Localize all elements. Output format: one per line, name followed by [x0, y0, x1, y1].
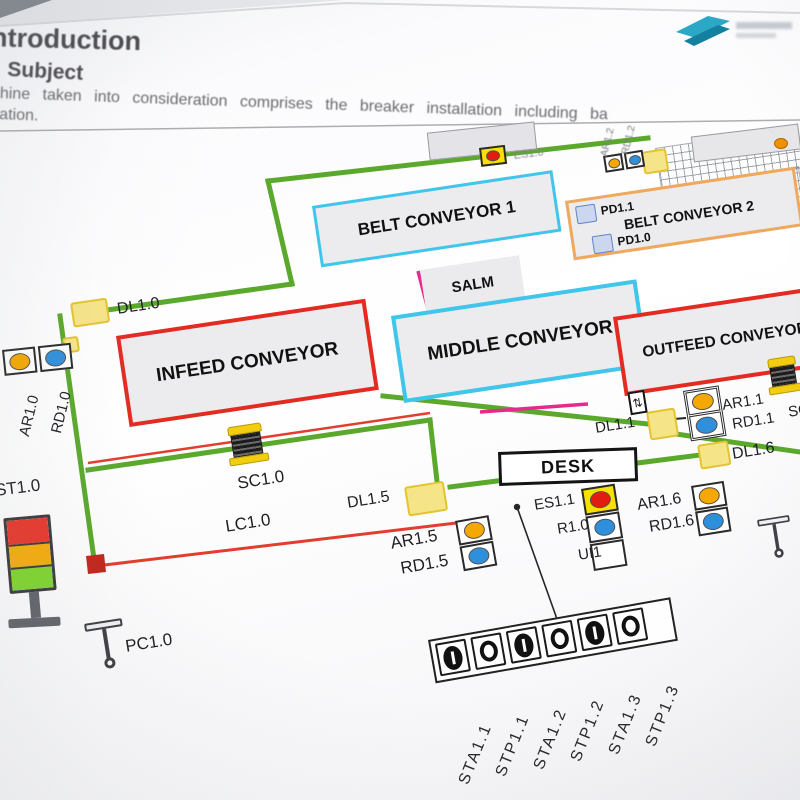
- safety-camera-sc11-icon: [764, 355, 800, 396]
- stop-button-stp12: [541, 620, 577, 658]
- estop-red-button: [588, 490, 611, 510]
- door-pad-dl15: [404, 481, 448, 517]
- start-button-sta13: [577, 613, 613, 651]
- estop-red-button: [485, 150, 500, 163]
- stop-glyph: [478, 639, 499, 663]
- body-text-line2: lation.: [0, 106, 39, 125]
- amber-lamp: [607, 157, 620, 169]
- orange-indicator-dot: [774, 138, 788, 149]
- door-pad-dl11: [646, 407, 679, 440]
- amber-lamp-icon: [691, 481, 728, 511]
- blue-lamp: [467, 546, 491, 566]
- diagram-linework: [0, 0, 800, 800]
- blue-lamp: [702, 511, 725, 531]
- stop-button-stp13: [612, 607, 648, 645]
- pole-stem: [102, 629, 111, 659]
- company-logo: [672, 14, 800, 54]
- reset-button-icon: [585, 511, 623, 543]
- start-glyph: [583, 619, 606, 646]
- blue-lamp: [44, 348, 67, 367]
- start-button-sta12: [506, 626, 542, 664]
- logo-wordmark-blur: [736, 22, 792, 29]
- start-glyph: [512, 631, 535, 658]
- indicator-panel-middle: [683, 385, 727, 441]
- blue-lamp-icon: [689, 411, 724, 439]
- heading-rule: [0, 120, 800, 131]
- door-pad-top: [641, 148, 669, 175]
- stack-light-red: [7, 517, 50, 544]
- pd11-sensor-icon: [575, 204, 597, 225]
- safety-camera-sc10-icon: [224, 422, 270, 467]
- amber-lamp: [462, 520, 486, 540]
- belt-conveyor-2-title: BELT CONVEYOR 2: [623, 197, 755, 232]
- blue-lamp-icon: [38, 343, 74, 372]
- amber-lamp: [698, 486, 721, 506]
- pole-stem: [772, 524, 780, 550]
- blue-lamp-icon: [695, 507, 732, 537]
- stack-light-icon: [3, 514, 60, 629]
- muting-sensor-icon: ⇅: [627, 390, 647, 415]
- reset-blue-button: [593, 517, 616, 537]
- pole-foot: [103, 657, 116, 670]
- amber-lamp: [691, 391, 715, 411]
- pd10-label: PD1.0: [617, 230, 652, 249]
- photographed-document-page: Introduction Subject machine taken into …: [0, 0, 800, 800]
- stack-light-body: [3, 514, 56, 594]
- ui1-label: UI1: [577, 543, 603, 563]
- amber-lamp: [8, 352, 31, 371]
- stop-button-stp11: [470, 632, 506, 670]
- amber-lamp-icon: [2, 347, 38, 376]
- start-glyph: [441, 644, 464, 671]
- stack-light-green: [11, 564, 54, 590]
- desk-box: DESK: [498, 447, 638, 486]
- blue-lamp: [694, 415, 718, 435]
- pc-pole-right-icon: [757, 515, 795, 560]
- pd10-sensor-icon: [592, 234, 614, 255]
- start-button-sta11: [435, 638, 471, 676]
- stop-glyph: [619, 614, 640, 638]
- door-pad-dl16: [697, 440, 732, 470]
- page-title: Introduction: [0, 22, 141, 57]
- emergency-stop-icon: [581, 484, 619, 516]
- estop-device-es10: [479, 145, 507, 167]
- emergency-stop-icon: [479, 145, 507, 167]
- section-subheading: Subject: [7, 58, 84, 86]
- stop-glyph: [549, 627, 570, 651]
- pole-foot: [773, 548, 784, 559]
- stack-light-pole: [29, 591, 41, 618]
- logo-tagline-blur: [736, 33, 776, 38]
- pc10-pole-icon: [84, 618, 129, 671]
